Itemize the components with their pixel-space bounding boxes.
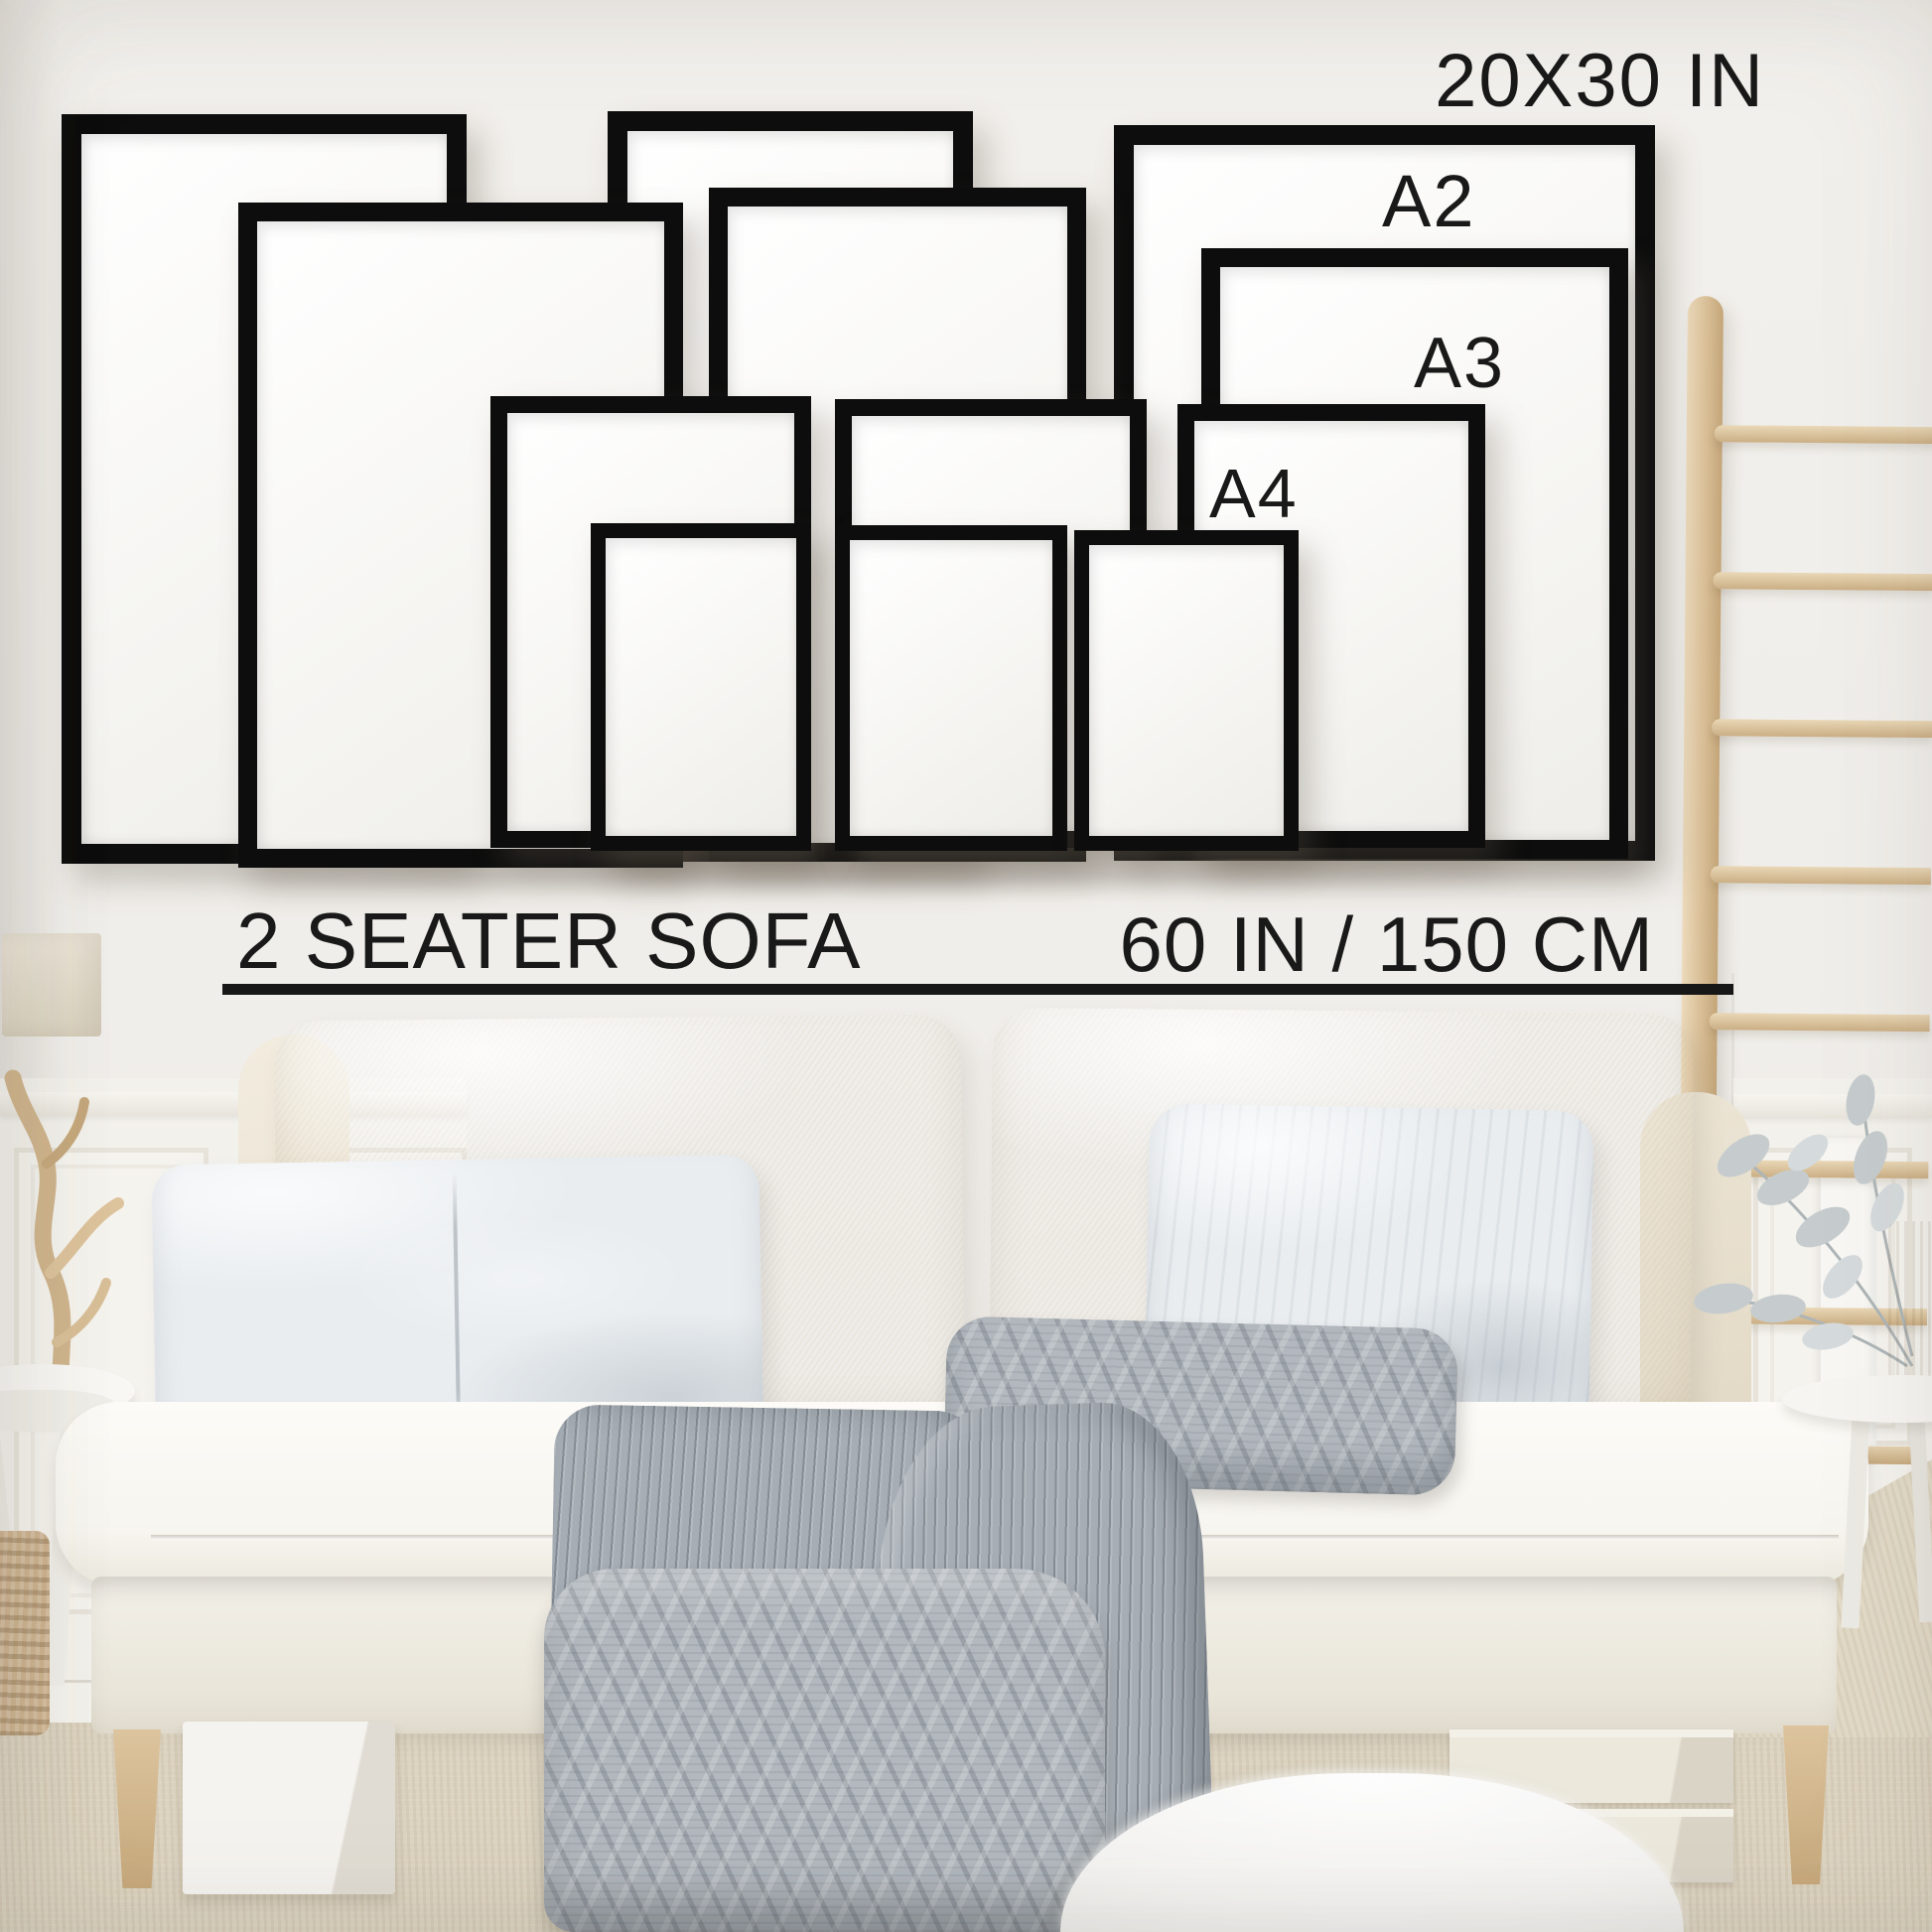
label-a3: A3 xyxy=(1414,328,1505,399)
jute-basket xyxy=(0,1531,50,1735)
eucalyptus-plant xyxy=(1575,1038,1932,1376)
measure-line xyxy=(222,984,1733,995)
ladder-rung xyxy=(1710,1013,1930,1032)
ladder-rung xyxy=(1711,866,1931,885)
lamp-shade xyxy=(2,933,101,1036)
ladder-rung xyxy=(1712,719,1932,738)
vase xyxy=(1888,1221,1932,1392)
ladder-rung xyxy=(1713,572,1932,591)
frame-a4-left xyxy=(591,523,811,851)
ladder-rung xyxy=(1715,425,1932,444)
frame-size-guide-image: 20X30 IN A2 A3 A4 2 SEATER SOFA 60 IN / … xyxy=(0,0,1932,1932)
sofa-caption: 2 SEATER SOFA xyxy=(236,901,861,981)
label-a4: A4 xyxy=(1209,459,1299,528)
storage-box-left xyxy=(183,1722,395,1894)
frame-a4-right xyxy=(1074,530,1299,851)
label-a2: A2 xyxy=(1382,165,1476,238)
knit-throw-floor xyxy=(544,1569,1105,1932)
width-caption: 60 IN / 150 CM xyxy=(1119,905,1654,983)
label-20x30: 20X30 IN xyxy=(1435,44,1765,119)
frame-a4-middle xyxy=(835,525,1067,851)
